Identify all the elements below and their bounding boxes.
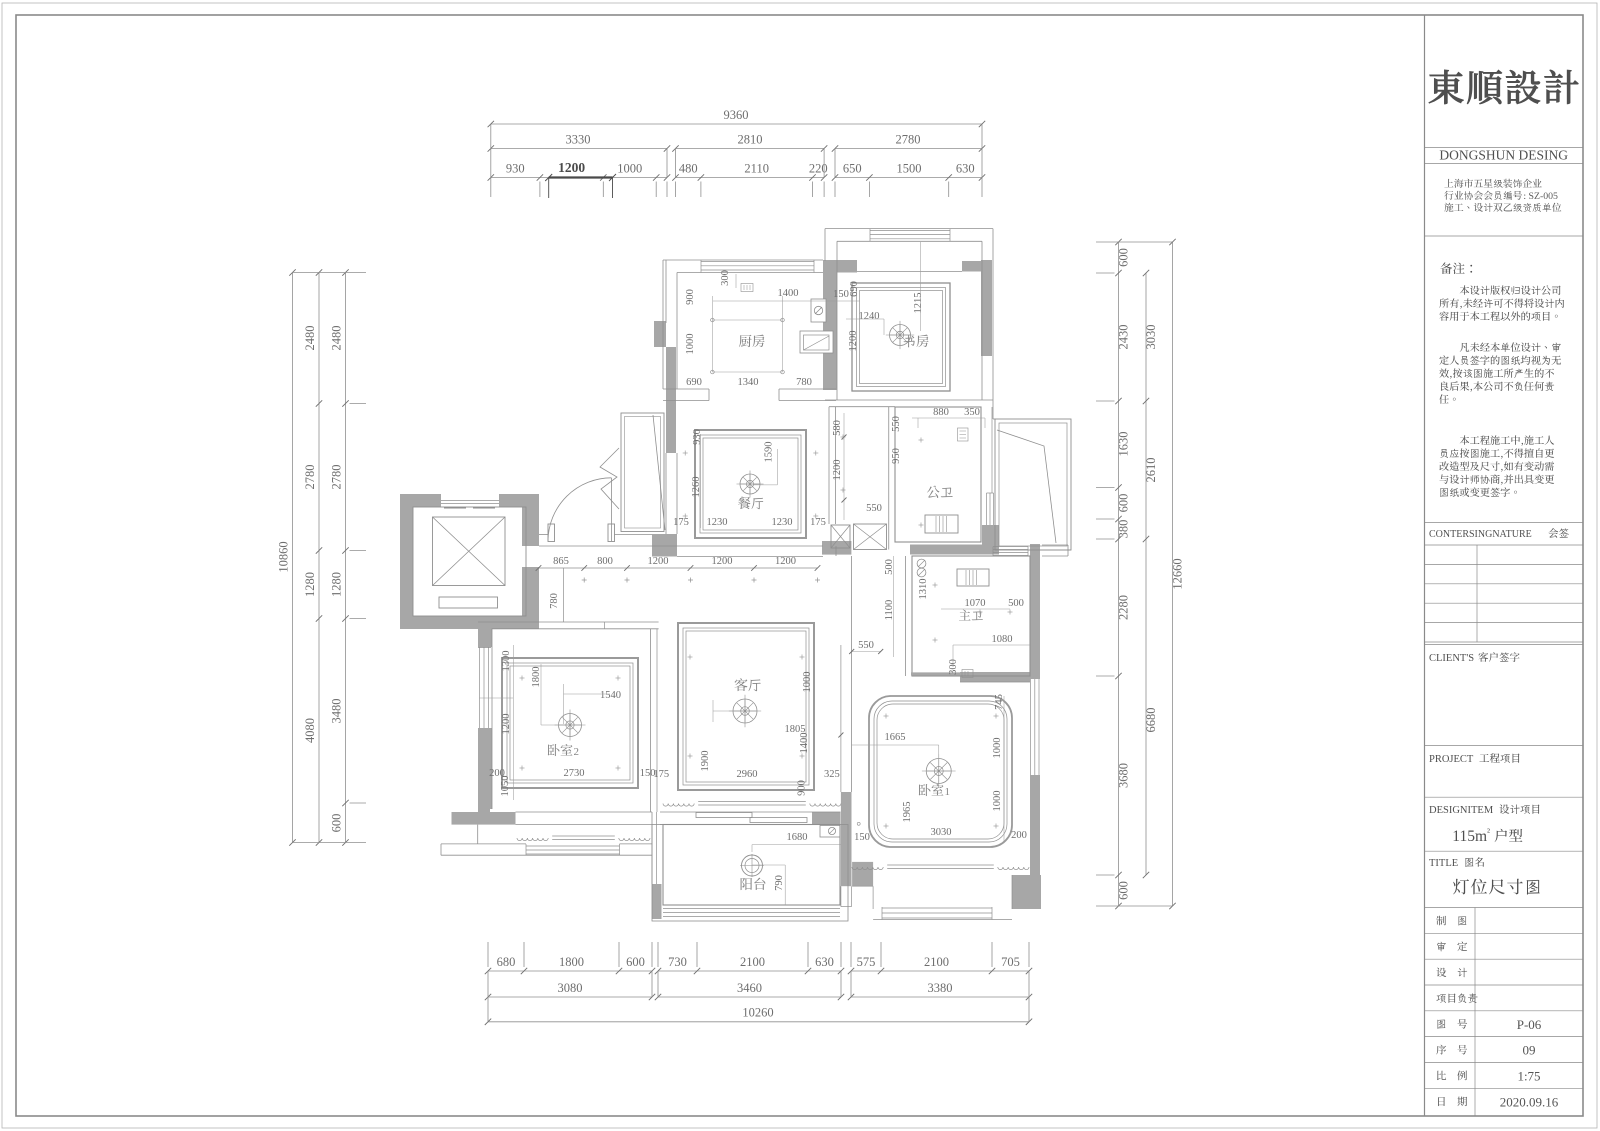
svg-text:150: 150 [833, 289, 849, 300]
svg-text:10260: 10260 [742, 1006, 773, 1020]
svg-text:1800: 1800 [559, 955, 584, 969]
svg-text:2: 2 [574, 746, 580, 758]
svg-text:1200: 1200 [832, 460, 843, 481]
svg-text:1500: 1500 [897, 162, 922, 176]
svg-text:1200: 1200 [558, 160, 585, 175]
svg-text:600: 600 [330, 814, 344, 833]
svg-text:2020.09.16: 2020.09.16 [1500, 1094, 1559, 1109]
svg-text:1280: 1280 [303, 572, 317, 597]
svg-text:650: 650 [843, 162, 862, 176]
svg-text:500: 500 [1008, 598, 1024, 609]
svg-text:: SZ-005: : SZ-005 [1523, 191, 1558, 202]
svg-text:575: 575 [857, 955, 876, 969]
svg-text:900: 900 [796, 780, 807, 796]
svg-text:705: 705 [1001, 955, 1020, 969]
svg-text:580: 580 [832, 420, 843, 436]
svg-text:3680: 3680 [1117, 763, 1131, 788]
svg-text:1230: 1230 [772, 517, 793, 528]
svg-text:730: 730 [668, 955, 687, 969]
svg-text:09: 09 [1523, 1043, 1536, 1058]
svg-text:600: 600 [626, 955, 645, 969]
svg-text:745: 745 [994, 694, 1005, 710]
svg-text:350: 350 [964, 407, 980, 418]
svg-text:550: 550 [858, 640, 874, 651]
svg-text:680: 680 [497, 955, 516, 969]
svg-text:1965: 1965 [902, 802, 913, 823]
svg-text:1630: 1630 [1117, 432, 1131, 457]
svg-text:1200: 1200 [848, 331, 859, 352]
svg-text:865: 865 [553, 556, 569, 567]
svg-text:3080: 3080 [558, 981, 583, 995]
svg-text:2100: 2100 [924, 955, 949, 969]
svg-text:3330: 3330 [566, 133, 591, 147]
svg-text:1400: 1400 [799, 733, 810, 754]
svg-text:2480: 2480 [330, 326, 344, 351]
svg-text:2430: 2430 [1117, 325, 1131, 350]
svg-text:880: 880 [933, 407, 949, 418]
svg-text:1000: 1000 [992, 738, 1003, 759]
svg-text:2110: 2110 [744, 162, 769, 176]
svg-text:790: 790 [774, 875, 785, 891]
svg-text:DONGSHUN DESING: DONGSHUN DESING [1439, 148, 1568, 163]
svg-text:1800: 1800 [531, 667, 542, 688]
svg-text:1300: 1300 [501, 651, 512, 672]
svg-text:930: 930 [692, 429, 703, 445]
svg-text:1000: 1000 [617, 162, 642, 176]
svg-text:2480: 2480 [303, 326, 317, 351]
svg-text:1680: 1680 [787, 832, 808, 843]
svg-text:1280: 1280 [330, 572, 344, 597]
svg-text:900: 900 [685, 289, 696, 305]
svg-text:550: 550 [891, 416, 902, 432]
svg-text:2730: 2730 [564, 768, 585, 779]
svg-text:690: 690 [849, 281, 860, 297]
svg-text:1050: 1050 [500, 776, 511, 797]
svg-text:1400: 1400 [778, 288, 799, 299]
svg-text:930: 930 [506, 162, 525, 176]
svg-text:325: 325 [824, 769, 840, 780]
svg-text:1200: 1200 [712, 556, 733, 567]
svg-text:800: 800 [597, 556, 613, 567]
svg-text:2610: 2610 [1144, 458, 1158, 483]
svg-text:3460: 3460 [737, 981, 762, 995]
svg-text:1200: 1200 [501, 714, 512, 735]
svg-text:P-06: P-06 [1517, 1017, 1542, 1032]
svg-text:1000: 1000 [802, 672, 813, 693]
svg-text:1200: 1200 [775, 556, 796, 567]
svg-text:630: 630 [815, 955, 834, 969]
svg-text:1590: 1590 [764, 442, 775, 463]
svg-text:DESIGNITEM: DESIGNITEM [1429, 805, 1494, 816]
svg-text:600: 600 [1117, 881, 1131, 900]
svg-text:300: 300 [948, 659, 959, 675]
svg-text:9360: 9360 [724, 108, 749, 122]
svg-text:3480: 3480 [330, 699, 344, 724]
svg-text:3030: 3030 [931, 827, 952, 838]
svg-text:1080: 1080 [992, 634, 1013, 645]
svg-text:2810: 2810 [738, 133, 763, 147]
svg-text:6680: 6680 [1144, 708, 1158, 733]
svg-text:175: 175 [810, 517, 826, 528]
svg-text:200: 200 [1011, 830, 1027, 841]
svg-text:CLIENT'S: CLIENT'S [1429, 653, 1474, 664]
svg-text:4080: 4080 [303, 718, 317, 743]
svg-text:1665: 1665 [885, 732, 906, 743]
svg-text:1240: 1240 [859, 311, 880, 322]
svg-text:1000: 1000 [992, 791, 1003, 812]
svg-text:175: 175 [673, 517, 689, 528]
svg-text:1230: 1230 [707, 517, 728, 528]
svg-text:780: 780 [549, 593, 560, 609]
svg-text:1000: 1000 [685, 334, 696, 355]
svg-text:10860: 10860 [277, 541, 291, 572]
svg-text:2100: 2100 [740, 955, 765, 969]
svg-text:300: 300 [720, 270, 731, 286]
svg-text:175: 175 [653, 769, 669, 780]
svg-text:690: 690 [686, 377, 702, 388]
svg-text:1200: 1200 [648, 556, 669, 567]
svg-text:1: 1 [945, 786, 951, 798]
svg-text:630: 630 [956, 162, 975, 176]
svg-text:220: 220 [809, 162, 828, 176]
svg-text:780: 780 [796, 377, 812, 388]
svg-text:2780: 2780 [330, 465, 344, 490]
svg-text:TITLE: TITLE [1429, 858, 1458, 869]
svg-text:3030: 3030 [1144, 325, 1158, 350]
svg-text:600: 600 [1117, 248, 1131, 267]
svg-text:1540: 1540 [600, 690, 621, 701]
svg-text:150: 150 [854, 832, 870, 843]
svg-text:2280: 2280 [1117, 595, 1131, 620]
svg-text:600: 600 [1117, 494, 1131, 513]
svg-text:1215: 1215 [913, 293, 924, 314]
svg-text:1:75: 1:75 [1517, 1068, 1540, 1083]
svg-text:PROJECT: PROJECT [1429, 754, 1474, 765]
svg-text:480: 480 [679, 162, 698, 176]
svg-text:12660: 12660 [1171, 558, 1185, 589]
svg-text:550: 550 [866, 503, 882, 514]
svg-text:950: 950 [891, 448, 902, 464]
svg-text:²: ² [1487, 827, 1490, 838]
svg-text:1340: 1340 [738, 377, 759, 388]
svg-text:1900: 1900 [700, 751, 711, 772]
svg-text:2780: 2780 [896, 133, 921, 147]
svg-text:1070: 1070 [965, 598, 986, 609]
svg-text:1310: 1310 [918, 579, 929, 600]
svg-text:2780: 2780 [303, 465, 317, 490]
svg-text:115m: 115m [1452, 828, 1487, 845]
svg-text:380: 380 [1117, 520, 1131, 539]
svg-text:3380: 3380 [928, 981, 953, 995]
svg-text:2960: 2960 [737, 769, 758, 780]
svg-text:CONTERSINGNATURE: CONTERSINGNATURE [1429, 529, 1532, 540]
